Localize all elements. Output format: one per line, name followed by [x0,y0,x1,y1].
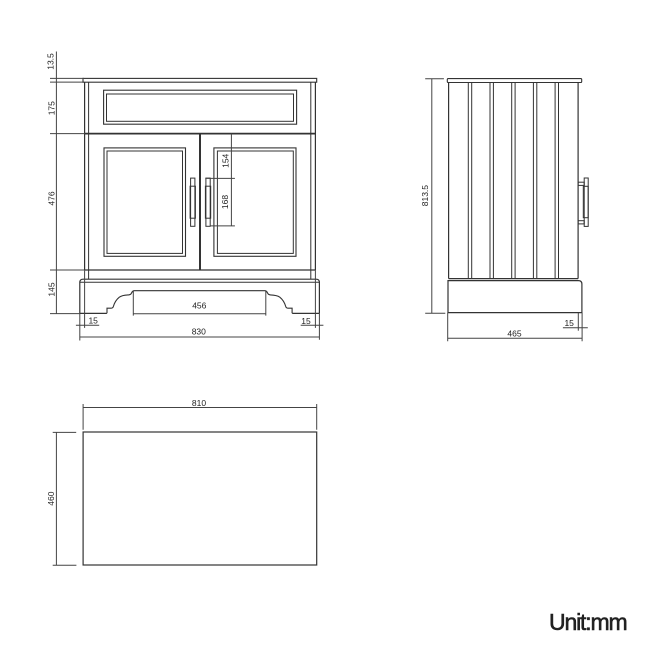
svg-text:Unit:mm: Unit:mm [549,609,627,635]
svg-text:175: 175 [46,101,56,115]
svg-text:830: 830 [192,326,206,336]
svg-text:15: 15 [564,318,574,328]
svg-text:15: 15 [301,316,311,326]
svg-text:460: 460 [46,491,56,505]
svg-text:13.5: 13.5 [45,53,55,70]
svg-text:145: 145 [46,282,56,296]
svg-text:810: 810 [192,398,206,408]
svg-text:476: 476 [46,191,56,205]
svg-text:465: 465 [507,328,521,338]
svg-text:15: 15 [88,316,98,326]
svg-text:154: 154 [221,153,231,167]
svg-text:168: 168 [220,195,230,209]
svg-text:813.5: 813.5 [420,185,430,207]
svg-text:456: 456 [192,301,206,311]
